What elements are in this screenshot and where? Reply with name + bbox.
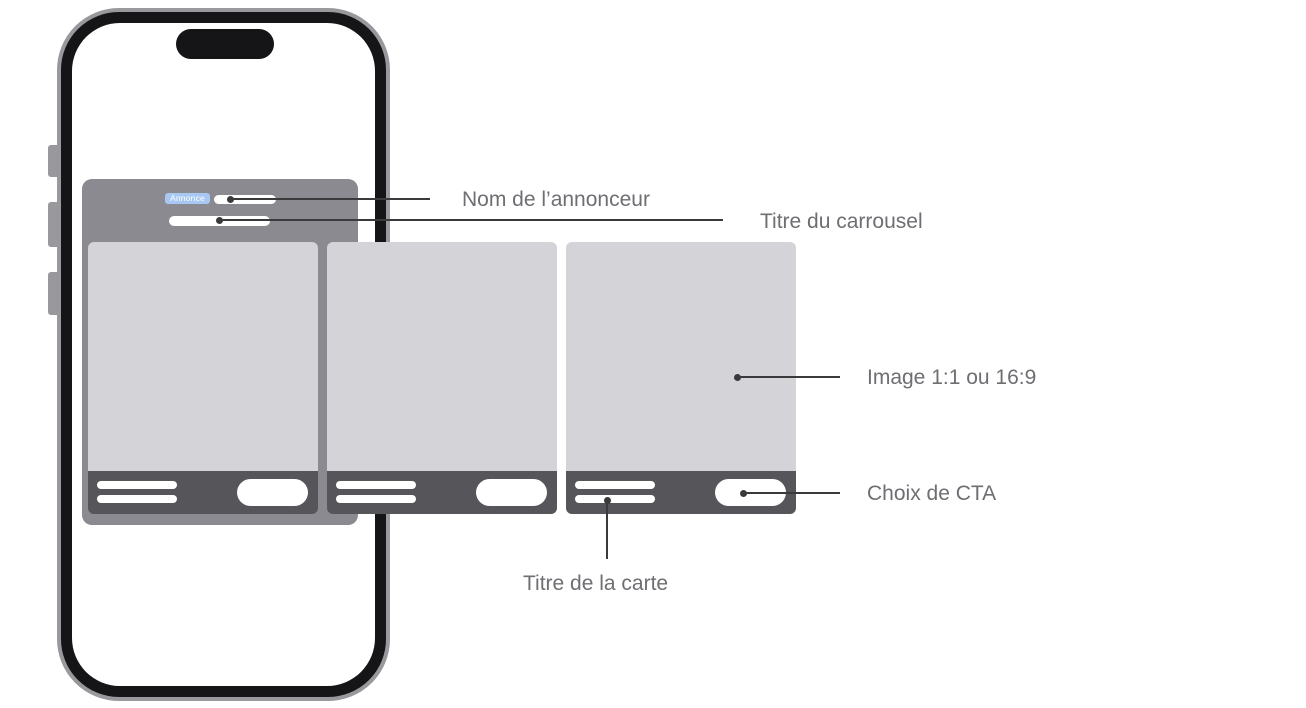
card-image-placeholder bbox=[566, 242, 796, 471]
card-title-line-placeholder bbox=[97, 481, 177, 489]
annotation-image-ratio: Image 1:1 ou 16:9 bbox=[867, 366, 1036, 390]
card-image-placeholder bbox=[327, 242, 557, 471]
phone-volume-up-button bbox=[48, 202, 57, 247]
carousel-ad-anatomy-diagram: Annonce Nom de l’annonceur Titre du carr bbox=[0, 0, 1306, 708]
card-title-line-placeholder bbox=[336, 481, 416, 489]
carousel-card-3 bbox=[566, 242, 796, 514]
annotation-carousel-title: Titre du carrousel bbox=[760, 210, 923, 234]
card-footer-bar bbox=[327, 471, 557, 514]
leader-line-cta-choice bbox=[746, 492, 840, 494]
leader-line-image-ratio bbox=[740, 376, 840, 378]
annotation-card-title: Titre de la carte bbox=[523, 572, 668, 596]
card-title-line-placeholder bbox=[97, 495, 177, 503]
phone-volume-down-button bbox=[48, 272, 57, 315]
leader-line-card-title bbox=[606, 503, 608, 559]
leader-line-carousel-title bbox=[222, 219, 723, 221]
ad-badge: Annonce bbox=[165, 193, 210, 204]
leader-dot-carousel-title bbox=[216, 217, 223, 224]
card-title-line-placeholder bbox=[336, 495, 416, 503]
leader-line-advertiser-name bbox=[233, 198, 430, 200]
annotation-advertiser-name: Nom de l’annonceur bbox=[462, 188, 650, 212]
card-footer-bar bbox=[88, 471, 318, 514]
phone-action-button bbox=[48, 145, 57, 177]
card-title-line-placeholder bbox=[575, 495, 655, 503]
cta-button-placeholder bbox=[476, 479, 547, 506]
carousel-card-1 bbox=[88, 242, 318, 514]
leader-dot-cta-choice bbox=[740, 490, 747, 497]
leader-dot-card-title bbox=[604, 497, 611, 504]
card-title-line-placeholder bbox=[575, 481, 655, 489]
carousel-card-2 bbox=[327, 242, 557, 514]
leader-dot-image-ratio bbox=[734, 374, 741, 381]
card-image-placeholder bbox=[88, 242, 318, 471]
cta-button-placeholder bbox=[237, 479, 308, 506]
annotation-cta-choice: Choix de CTA bbox=[867, 482, 996, 506]
dynamic-island bbox=[176, 29, 274, 59]
leader-dot-advertiser-name bbox=[227, 196, 234, 203]
